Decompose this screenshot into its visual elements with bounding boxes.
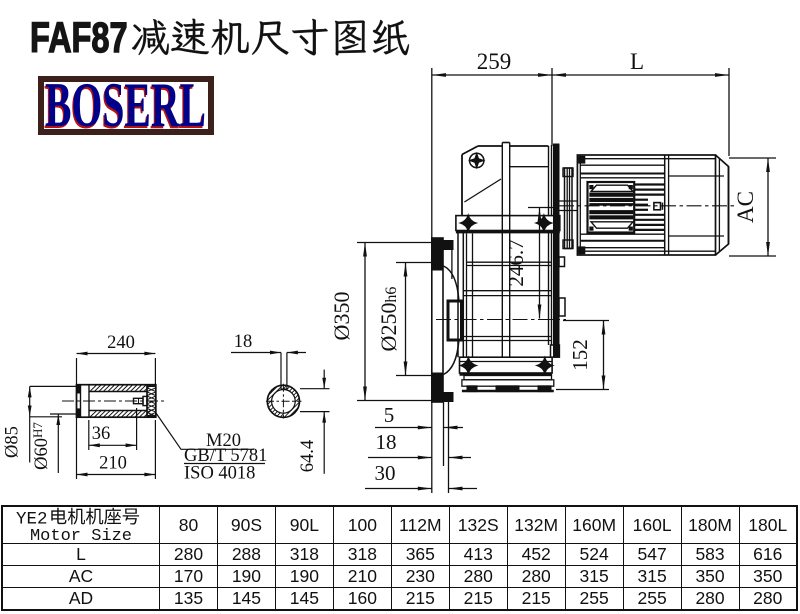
svg-text:AC: AC: [733, 191, 758, 223]
svg-text:ISO 4018: ISO 4018: [184, 464, 255, 484]
svg-text:240: 240: [107, 333, 135, 353]
svg-text:Ø85: Ø85: [3, 426, 23, 458]
svg-text:18: 18: [376, 430, 397, 454]
svg-text:36: 36: [92, 424, 111, 444]
svg-text:18: 18: [234, 332, 253, 352]
svg-text:Ø250h6: Ø250h6: [376, 287, 401, 352]
svg-text:246.7: 246.7: [504, 239, 528, 286]
svg-text:152: 152: [568, 339, 592, 371]
svg-text:210: 210: [99, 454, 127, 474]
svg-text:Ø350: Ø350: [329, 292, 354, 341]
svg-text:Motor Size: Motor Size: [30, 527, 132, 543]
svg-text:Ø60H7: Ø60H7: [30, 422, 52, 470]
svg-text:L: L: [630, 49, 644, 74]
svg-text:5: 5: [384, 403, 395, 427]
svg-text:30: 30: [375, 461, 396, 485]
svg-text:259: 259: [477, 49, 512, 74]
svg-text:64.4: 64.4: [298, 440, 318, 472]
